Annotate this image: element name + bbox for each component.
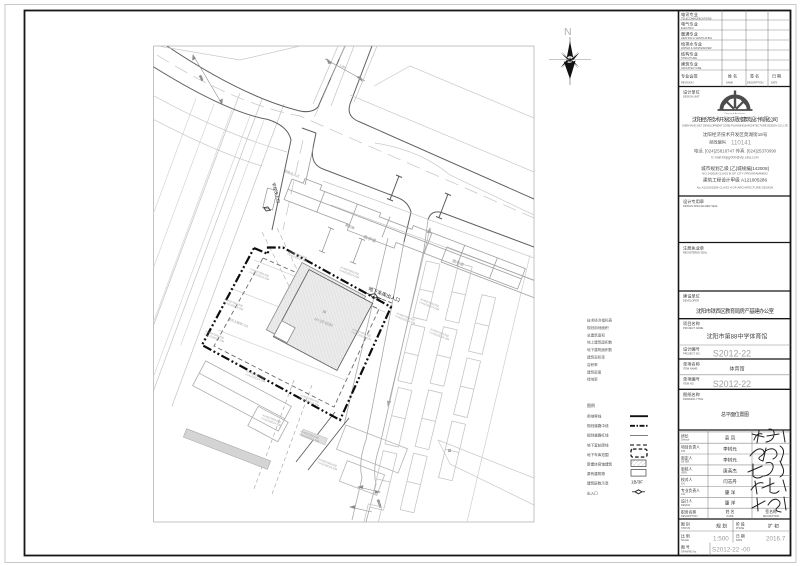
svg-text:项目名称: 项目名称 bbox=[683, 320, 700, 327]
svg-text:1:500: 1:500 bbox=[713, 536, 729, 543]
svg-text:签名称: 签名称 bbox=[765, 509, 777, 514]
svg-text:110141: 110141 bbox=[731, 139, 752, 146]
svg-text:DESIGN SPECIALIZED SEAL: DESIGN SPECIALIZED SEAL bbox=[683, 204, 718, 208]
svg-text:DRAWING TITLE: DRAWING TITLE bbox=[683, 397, 703, 401]
svg-text:图 别: 图 别 bbox=[681, 522, 690, 527]
svg-text:规划用地面积: 规划用地面积 bbox=[587, 325, 609, 330]
svg-text:DESIGN: DESIGN bbox=[681, 504, 690, 507]
svg-text:总平面位置图: 总平面位置图 bbox=[721, 411, 749, 418]
svg-text:规划道路中线: 规划道路中线 bbox=[587, 423, 609, 428]
svg-text:沈阳经济技术开发区规划建筑设计有限公司: 沈阳经济技术开发区规划建筑设计有限公司 bbox=[692, 116, 778, 124]
svg-text:阶 段: 阶 段 bbox=[736, 522, 745, 527]
svg-text:PROJECT NAME: PROJECT NAME bbox=[683, 326, 704, 330]
svg-text:李树元: 李树元 bbox=[723, 456, 737, 463]
svg-text:DESCRIPTION: DESCRIPTION bbox=[681, 515, 698, 518]
svg-text:新建体育馆建筑: 新建体育馆建筑 bbox=[587, 462, 613, 467]
svg-text:2016.7: 2016.7 bbox=[766, 536, 786, 543]
svg-text:Planning & Architecture: Planning & Architecture bbox=[725, 112, 747, 115]
svg-text:容积率: 容积率 bbox=[587, 362, 598, 367]
svg-text:沈阳经济技术开发区莫湖街18号: 沈阳经济技术开发区莫湖街18号 bbox=[703, 131, 768, 138]
svg-text:NAME: NAME bbox=[727, 515, 734, 518]
svg-text:建筑层数示意: 建筑层数示意 bbox=[587, 481, 609, 486]
svg-text:图 号: 图 号 bbox=[681, 545, 690, 550]
svg-text:Director: Director bbox=[681, 439, 690, 442]
svg-text:DETER.: DETER. bbox=[681, 461, 690, 464]
svg-text:用地界线: 用地界线 bbox=[587, 414, 602, 419]
svg-text:DESCRIPTION: DESCRIPTION bbox=[747, 82, 764, 85]
svg-text:唐英杰: 唐英杰 bbox=[723, 467, 737, 474]
svg-text:N: N bbox=[564, 26, 572, 38]
svg-text:ITEM NAME: ITEM NAME bbox=[683, 367, 698, 371]
svg-text:WATER & WASTEWATER: WATER & WASTEWATER bbox=[681, 46, 712, 50]
svg-text:单项编号: 单项编号 bbox=[683, 376, 700, 383]
svg-text:邮政编码: 邮政编码 bbox=[709, 139, 726, 146]
svg-text:地下车库范围: 地下车库范围 bbox=[587, 452, 609, 457]
svg-text:日 期: 日 期 bbox=[772, 73, 781, 79]
svg-text:REGISTERED SEAL: REGISTERED SEAL bbox=[683, 251, 708, 255]
svg-text:签 名: 签 名 bbox=[750, 73, 759, 79]
svg-text:图纸名称: 图纸名称 bbox=[683, 391, 700, 398]
svg-text:沈阳市铁西区教育局房产基建办公室: 沈阳市铁西区教育局房产基建办公室 bbox=[696, 307, 775, 315]
svg-text:No.A121005286 CLASS A OF ARCHI: No.A121005286 CLASS A OF ARCHITECTURE DE… bbox=[697, 186, 773, 190]
svg-text:地下建筑面积数: 地下建筑面积数 bbox=[587, 347, 613, 352]
svg-text:专业会签: 专业会签 bbox=[681, 73, 699, 80]
svg-text:HEATING & VENTILATING: HEATING & VENTILATING bbox=[681, 36, 712, 40]
svg-text:建筑容积率: 建筑容积率 bbox=[587, 355, 605, 360]
svg-text:STRUCTURE: STRUCTURE bbox=[681, 56, 697, 60]
svg-text:1B/3F: 1B/3F bbox=[631, 479, 643, 484]
svg-text:绿地率: 绿地率 bbox=[587, 377, 598, 382]
svg-text:STATUS: STATUS bbox=[681, 527, 690, 530]
svg-text:S2012-22: S2012-22 bbox=[713, 349, 751, 359]
svg-text:沈阳市第88中学体育馆: 沈阳市第88中学体育馆 bbox=[707, 333, 768, 341]
svg-text:SCALE: SCALE bbox=[681, 539, 689, 542]
svg-text:设计编号: 设计编号 bbox=[683, 346, 700, 353]
svg-text:设计单位: 设计单位 bbox=[683, 89, 700, 96]
svg-text:S2012-22: S2012-22 bbox=[713, 379, 751, 389]
svg-text:建筑工程设计甲级 A121005286: 建筑工程设计甲级 A121005286 bbox=[703, 177, 768, 184]
svg-text:PHASE: PHASE bbox=[736, 527, 745, 530]
svg-text:E-mail:kfqsjy000@vip.sina.com: E-mail:kfqsjy000@vip.sina.com bbox=[711, 156, 758, 160]
svg-text:注册执业章: 注册执业章 bbox=[683, 245, 704, 252]
svg-text:建筑密度: 建筑密度 bbox=[587, 369, 602, 374]
svg-text:规划道路红线: 规划道路红线 bbox=[587, 433, 609, 438]
svg-text:NO.142008 CLASS B OF CITY PROG: NO.142008 CLASS B OF CITY PROGRAMMING bbox=[702, 172, 768, 176]
svg-text:CH.: CH. bbox=[681, 482, 685, 485]
svg-text:原有建筑物: 原有建筑物 bbox=[587, 471, 605, 476]
svg-text:DEVELOPER: DEVELOPER bbox=[683, 299, 699, 303]
svg-text:地上建筑面积数: 地上建筑面积数 bbox=[587, 340, 613, 345]
svg-text:体育馆: 体育馆 bbox=[729, 366, 744, 373]
svg-text:日 期: 日 期 bbox=[736, 534, 745, 539]
svg-text:总建筑面积: 总建筑面积 bbox=[587, 332, 605, 337]
svg-text:建设单位: 建设单位 bbox=[683, 293, 700, 300]
svg-text:PROJECT NO.: PROJECT NO. bbox=[683, 352, 701, 356]
svg-text:李树元: 李树元 bbox=[723, 446, 737, 453]
svg-text:出入口: 出入口 bbox=[587, 490, 598, 495]
svg-text:职务名称: 职务名称 bbox=[681, 510, 696, 515]
svg-text:闫志丹: 闫志丹 bbox=[723, 478, 737, 485]
svg-text:袁 凤: 袁 凤 bbox=[725, 434, 736, 441]
svg-text:图例: 图例 bbox=[587, 402, 595, 408]
svg-text:NAME: NAME bbox=[726, 82, 733, 85]
svg-text:技术经济指标表: 技术经济指标表 bbox=[587, 318, 613, 323]
svg-text:姓 名: 姓 名 bbox=[726, 509, 735, 514]
svg-text:扩 初: 扩 初 bbox=[768, 523, 779, 530]
svg-text:DESCRIPTION: DESCRIPTION bbox=[763, 515, 780, 518]
svg-text:电话. [024]25818747 传真. [024]253: 电话. [024]25818747 传真. [024]25370090 bbox=[694, 148, 777, 155]
svg-text:DATE: DATE bbox=[736, 539, 743, 542]
svg-text:VERI.: VERI. bbox=[681, 472, 688, 475]
svg-text:肇 洋: 肇 洋 bbox=[725, 500, 736, 507]
svg-text:单项名称: 单项名称 bbox=[683, 361, 700, 368]
svg-text:REVISION: REVISION bbox=[681, 81, 694, 85]
svg-text:设计专用章: 设计专用章 bbox=[683, 198, 704, 205]
svg-text:规 划: 规 划 bbox=[716, 523, 727, 530]
svg-text:肇 洋: 肇 洋 bbox=[725, 489, 736, 496]
svg-text:DESIGN UNIT: DESIGN UNIT bbox=[683, 95, 700, 99]
svg-text:比 例: 比 例 bbox=[681, 534, 690, 539]
svg-text:ITEM NO.: ITEM NO. bbox=[683, 382, 695, 386]
svg-text:ARCHITECTURE: ARCHITECTURE bbox=[681, 66, 702, 70]
svg-text:DRAWING No.: DRAWING No. bbox=[681, 551, 697, 554]
svg-text:C.E.: C.E. bbox=[681, 493, 686, 496]
svg-text:P.M.: P.M. bbox=[681, 450, 686, 453]
svg-text:SHENYANG E&T DEVELOPMENT ZONE: SHENYANG E&T DEVELOPMENT ZONE PLANNING&A… bbox=[682, 124, 788, 128]
svg-text:姓 名: 姓 名 bbox=[728, 73, 737, 79]
svg-text:ELECTRIC: ELECTRIC bbox=[681, 26, 694, 30]
svg-text:DATE: DATE bbox=[771, 82, 778, 85]
svg-text:S2012-22 -00: S2012-22 -00 bbox=[712, 547, 751, 554]
svg-text:TELECOMMUNICATIONS: TELECOMMUNICATIONS bbox=[681, 16, 712, 20]
svg-text:地下室轮廓线: 地下室轮廓线 bbox=[587, 442, 609, 447]
